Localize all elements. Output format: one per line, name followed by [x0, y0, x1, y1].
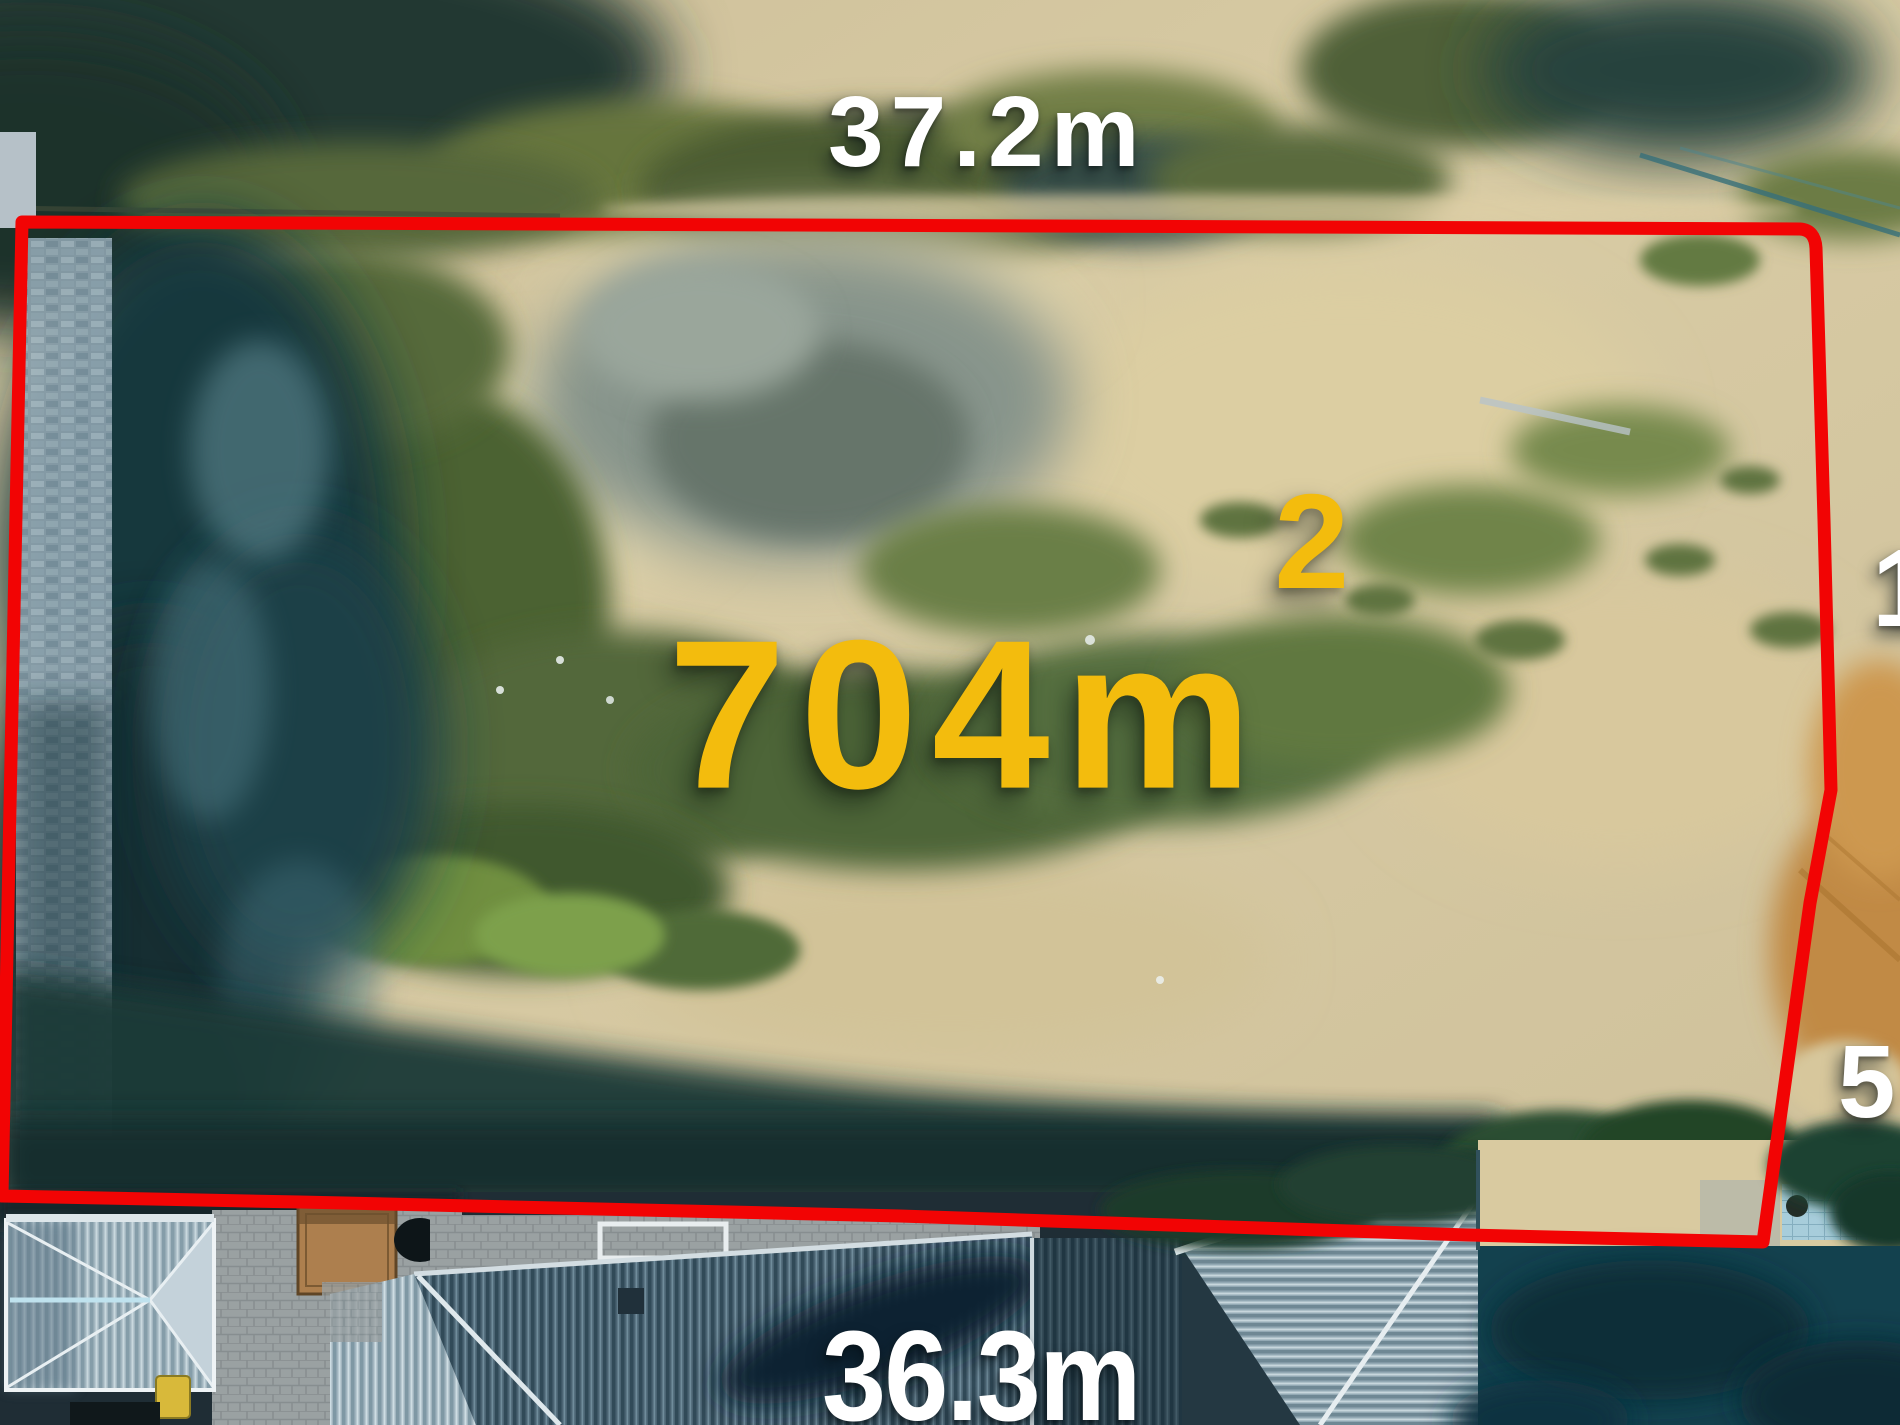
bottom-boundary-dimension-label: 36.3m — [822, 1313, 1140, 1425]
right-dimension-clipped-digit: 1 — [1872, 534, 1900, 644]
dark-bins — [70, 1402, 160, 1425]
land-area-value: 704m — [668, 596, 1266, 833]
right-dimension-partial-digit: 5 — [1838, 1030, 1895, 1133]
trailer — [298, 1206, 396, 1294]
aerial-photo: 37.2m 704m2 36.3m 5 1 — [0, 0, 1900, 1425]
shed-roof — [6, 1214, 214, 1390]
yellow-bin — [156, 1376, 190, 1418]
neighbour-courtyard — [1450, 1120, 1900, 1425]
top-boundary-dimension-label: 37.2m — [828, 82, 1147, 182]
land-area-label: 704m2 — [668, 602, 1349, 821]
land-area-superscript: 2 — [1274, 466, 1349, 617]
